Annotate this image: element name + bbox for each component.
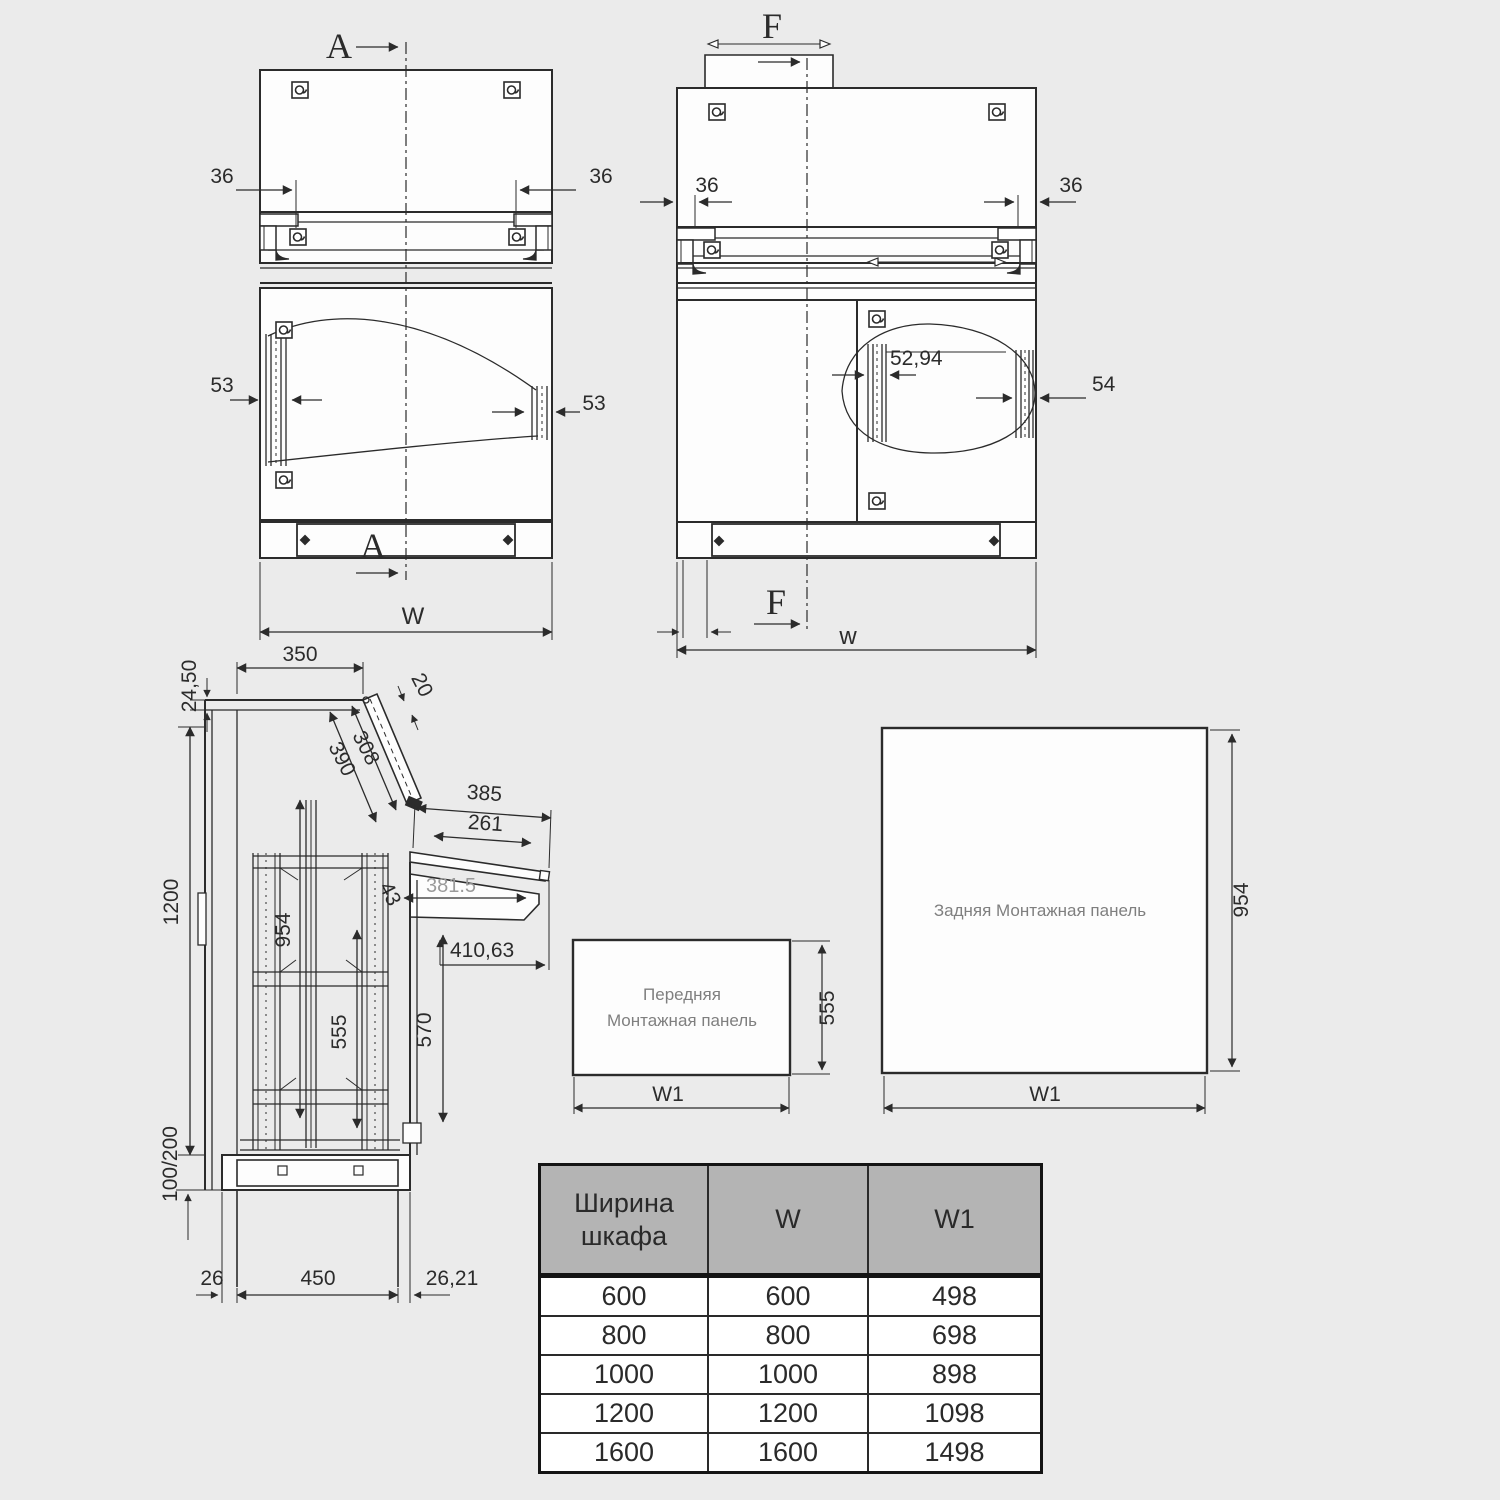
dim-53-right: 53 xyxy=(582,392,605,415)
fastener-icon xyxy=(504,82,520,98)
dim-570: 570 xyxy=(413,1012,436,1047)
dim-555: 555 xyxy=(328,1014,351,1049)
fastener-icon xyxy=(704,242,720,258)
dim-43: 43 xyxy=(374,878,405,909)
front-panel-dim-w1: W1 xyxy=(652,1083,684,1106)
dim-385: 385 xyxy=(466,781,503,806)
fastener-icon xyxy=(276,472,292,488)
front-view-a xyxy=(230,42,580,640)
table-row: 800 800 698 xyxy=(541,1317,1040,1356)
cell-w1-1098: 1098 xyxy=(867,1395,1040,1432)
dim-450: 450 xyxy=(300,1267,335,1290)
cell-width-1000: 1000 xyxy=(541,1356,707,1393)
dim-24-50: 24,50 xyxy=(178,660,201,713)
front-panel-title-line1: Передняя xyxy=(643,985,721,1004)
section-label-a-top: A xyxy=(326,26,352,66)
rear-panel-dim-w1: W1 xyxy=(1029,1083,1061,1106)
mounting-frame xyxy=(240,800,400,1150)
section-label-f-bottom: F xyxy=(766,582,786,622)
section-label-f-top: F xyxy=(762,6,782,46)
table-row: 600 600 498 xyxy=(541,1278,1040,1317)
table-row: 1600 1600 1498 xyxy=(541,1434,1040,1471)
rear-panel-title: Задняя Монтажная панель xyxy=(934,901,1146,920)
table-header-width: Ширина шкафа xyxy=(541,1166,707,1273)
table-row: 1200 1200 1098 xyxy=(541,1395,1040,1434)
dim-350: 350 xyxy=(282,643,317,666)
fastener-icon xyxy=(276,322,292,338)
dim-410-63: 410,63 xyxy=(450,939,514,962)
dim-w: w xyxy=(838,623,857,650)
fastener-icon xyxy=(992,242,1008,258)
cell-w-600: 600 xyxy=(707,1278,867,1315)
dim-381-5: 381.5 xyxy=(426,875,476,897)
cell-w-1200: 1200 xyxy=(707,1395,867,1432)
front-panel-dim-555: 555 xyxy=(816,990,839,1025)
cell-width-800: 800 xyxy=(541,1317,707,1354)
table-header-row: Ширина шкафа W W1 xyxy=(541,1166,1040,1278)
rear-mounting-panel xyxy=(882,728,1240,1114)
table-row: 1000 1000 898 xyxy=(541,1356,1040,1395)
front-panel-title-line2: Монтажная панель xyxy=(607,1011,757,1030)
dim-1200: 1200 xyxy=(160,879,183,926)
dim-100-200: 100/200 xyxy=(159,1126,182,1202)
fastener-icon xyxy=(989,104,1005,120)
dim-20: 20 xyxy=(406,669,437,700)
dim-54: 54 xyxy=(1092,373,1116,396)
cell-w1-498: 498 xyxy=(867,1278,1040,1315)
fastener-icon xyxy=(869,493,885,509)
fastener-icon xyxy=(709,104,725,120)
dim-261: 261 xyxy=(467,811,504,836)
fastener-icon xyxy=(292,82,308,98)
dim-52-94: 52,94 xyxy=(890,347,943,370)
table-header-w1: W1 xyxy=(867,1166,1040,1273)
cell-width-1200: 1200 xyxy=(541,1395,707,1432)
dim-36-left: 36 xyxy=(695,174,718,197)
technical-drawing-page: A A 36 36 53 53 W xyxy=(0,0,1500,1500)
width-size-table: Ширина шкафа W W1 600 600 498 800 800 69… xyxy=(538,1163,1043,1474)
dim-26-21: 26,21 xyxy=(426,1267,479,1290)
cell-w-1000: 1000 xyxy=(707,1356,867,1393)
dim-26: 26 xyxy=(200,1267,223,1290)
cell-width-1600: 1600 xyxy=(541,1434,707,1471)
dim-36-right: 36 xyxy=(1059,174,1082,197)
dim-36-left: 36 xyxy=(210,165,233,188)
fastener-icon xyxy=(869,311,885,327)
front-view-f xyxy=(640,44,1086,658)
dim-53-left: 53 xyxy=(210,374,233,397)
cell-w-800: 800 xyxy=(707,1317,867,1354)
dim-954: 954 xyxy=(272,912,295,947)
fastener-icon xyxy=(290,229,306,245)
cell-w1-898: 898 xyxy=(867,1356,1040,1393)
dim-36-right: 36 xyxy=(589,165,612,188)
rear-panel-dim-954: 954 xyxy=(1230,882,1253,917)
cell-w1-1498: 1498 xyxy=(867,1434,1040,1471)
section-label-a-bottom: A xyxy=(360,526,386,566)
fastener-icon xyxy=(509,229,525,245)
cell-w1-698: 698 xyxy=(867,1317,1040,1354)
cell-width-600: 600 xyxy=(541,1278,707,1315)
dim-w: W xyxy=(402,603,425,630)
cell-w-1600: 1600 xyxy=(707,1434,867,1471)
table-header-w: W xyxy=(707,1166,867,1273)
